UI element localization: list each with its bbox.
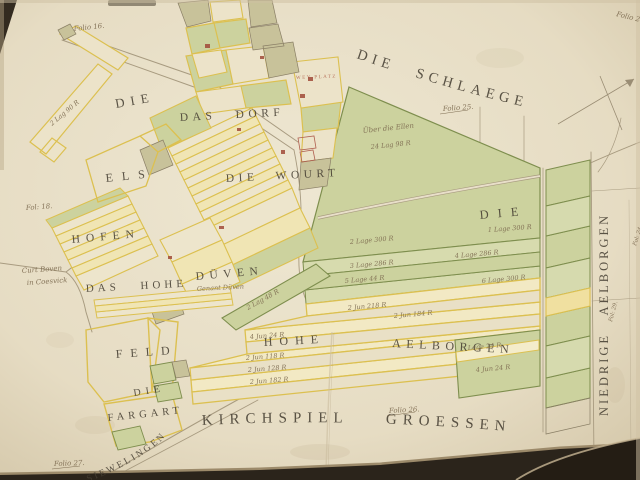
folio-note-27: Folio 27. [53,459,85,468]
top-edge-shade [0,0,640,3]
right-column-parcels [546,160,590,434]
map-page: DIE SCHLAEGE DIE DAS DORF ELS DIE WOURT … [0,0,640,480]
right-column-green-b [546,196,590,378]
historical-map-svg: DIE SCHLAEGE DIE DAS DORF ELS DIE WOURT … [0,0,640,480]
left-edge-shade [0,0,4,170]
